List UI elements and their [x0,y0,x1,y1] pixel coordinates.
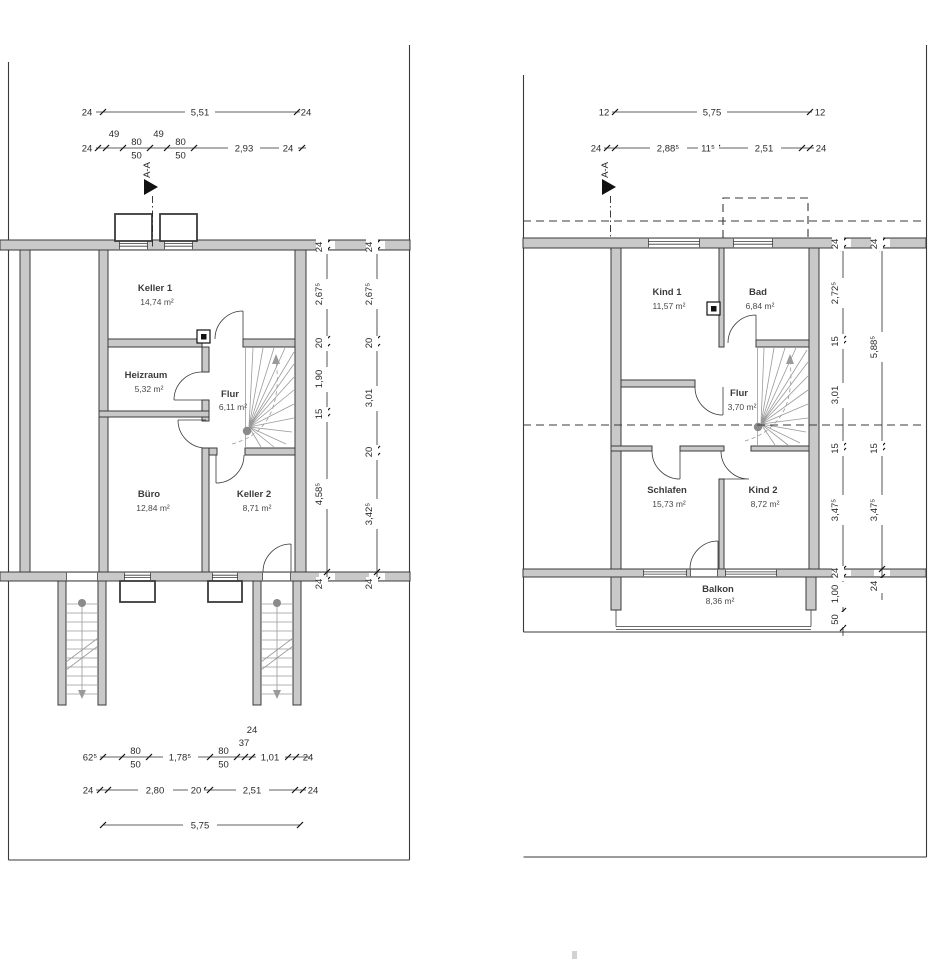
room-name-label: Balkon [702,584,734,595]
dim-label: 80 [218,746,229,757]
dim-label: 62⁵ [83,753,98,764]
dim-label: 24 [591,144,602,155]
south-wall [0,572,410,581]
dim-label: 15 [830,336,841,347]
dim-label: 2,93 [235,144,254,155]
dim-label: 49 [153,129,164,140]
dim-label: 50 [130,760,141,771]
dim-label: 24 [82,144,93,155]
dim-label: 37 [239,738,250,749]
door [652,315,756,569]
room-area-label: 14,74 m² [140,297,174,307]
north-wall [523,238,926,248]
dim-label: 11⁵ [701,144,715,155]
dim-label: 3,01 [830,386,841,405]
window [648,239,700,247]
dim-label: 3,01 [364,389,375,408]
dim-label: 2,80 [146,786,165,797]
dim-label: 24 [869,581,880,592]
stair-pole [754,423,762,431]
floorplan-drawing: A-A [0,0,941,960]
window [212,573,238,580]
section-arrow-icon [144,179,158,195]
dim-label: 4,58⁵ [314,483,325,505]
dormer-outline [723,198,808,238]
room-area-label: 8,36 m² [706,596,735,606]
room-name-label: Kind 1 [652,287,682,298]
dim-label: 50 [175,151,186,162]
window [643,570,687,576]
dim-label: 2,88⁵ [657,144,679,155]
left-floor-plan: A-A [0,45,410,860]
dim-label: 5,75 [191,821,210,832]
dim-label: 80 [131,137,142,148]
east-wall [809,248,819,569]
dimension-chain: 5,75 [100,819,303,832]
dimension-chain: 24 2,88⁵ 11⁵ 2,51 24 [591,142,827,155]
room-area-label: 11,57 m² [653,301,686,311]
dim-label: 3,47⁵ [869,499,880,521]
dim-label: 12 [599,108,610,119]
dim-label: 24 [308,786,319,797]
neighbor-wall [20,250,30,572]
dim-label: 1,01 [261,753,280,764]
room-name-label: Büro [138,489,160,500]
light-well [208,581,242,602]
room-name-label: Keller 2 [237,489,271,500]
dimension-chain: 24 5,88⁵ 15 3,47⁵ 24 [869,236,885,600]
south-wall [523,569,926,577]
chimney-symb [707,302,720,315]
dimension-chain: 24 49 80 50 49 80 50 2,93 24 [82,129,306,162]
dim-label: 24 [830,239,841,250]
dim-label: 20 [364,338,375,349]
room-name-label: Keller 1 [138,283,173,294]
dim-label: 24 [82,108,93,119]
dim-label: 20 [364,447,375,458]
window [164,241,193,249]
dim-label: 15 [830,443,841,454]
section-label: A-A [600,161,611,178]
room-area-label: 12,84 m² [136,503,170,513]
room-name-label: Bad [749,287,767,298]
dimension-chain: 24 2,67⁵ 20 1,90 15 4,58⁵ 24 [314,239,330,592]
dim-label: 80 [175,137,186,148]
dim-label: 24 [869,239,880,250]
light-well [160,214,197,241]
dim-label: 3,47⁵ [830,499,841,521]
staircase [232,347,294,448]
dimension-chain: 12 5,75 12 [599,106,826,119]
room-area-label: 8,72 m² [751,499,780,509]
dim-label: 24 [283,144,294,155]
floorplan-canvas: A-A [0,0,941,960]
north-wall [0,240,410,250]
room-area-label: 3,70 m² [728,402,757,412]
dimension-chain: 24 2,72⁵ 15 3,01 15 3,47⁵ 24 1,00 50 [830,236,846,636]
dim-label: 3,42⁵ [364,503,375,525]
dim-label: 50 [830,614,841,625]
room-area-label: 8,71 m² [243,503,272,513]
dim-label: 24 [830,568,841,579]
west-wall [611,248,621,569]
dim-label: 20 [314,338,325,349]
exterior-stair [253,581,301,705]
dim-label: 24 [314,242,325,253]
dimension-chain: 62⁵ 80 50 1,78⁵ 80 50 24 37 1,01 24 [83,725,314,771]
dim-label: 1,00 [830,585,841,604]
room-name-label: Flur [730,388,748,399]
dim-label: 24 [301,108,312,119]
window [733,239,773,247]
dim-label: 12 [815,108,826,119]
dim-label: 1,78⁵ [169,753,191,764]
dim-label: 15 [314,409,325,420]
dim-label: 24 [364,242,375,253]
dim-label: 50 [218,760,229,771]
room-name-label: Schlafen [647,485,687,496]
right-floor-plan: A-A 12 5,75 12 24 2,88⁵ 11⁵ 2,51 24 [523,45,927,857]
room-name-label: Kind 2 [748,485,777,496]
dim-label: 24 [314,579,325,590]
dim-label: 24 [247,725,258,736]
light-well [115,214,152,241]
section-arrow-icon [602,179,616,195]
light-well [120,581,155,602]
door-opening [66,573,98,580]
dim-label: 5,51 [191,108,210,119]
dim-label: 20 [191,786,202,797]
window [124,573,151,580]
dimension-chain: 24 2,80 20 2,51 24 [83,785,319,797]
room-area-label: 6,11 m² [219,402,247,412]
dim-label: 5,75 [703,108,722,119]
exterior-stair [58,581,106,705]
dim-label: 2,51 [243,786,262,797]
dim-label: 24 [303,753,314,764]
window [725,570,777,576]
room-name-label: Heizraum [125,370,168,381]
section-marker: A-A [600,161,616,250]
dimension-chain: 24 2,67⁵ 20 3,01 20 3,42⁵ 24 [364,239,380,592]
dim-label: 2,67⁵ [364,283,375,305]
dimension-chain: 24 5,51 24 [82,106,312,119]
dim-label: 2,72⁵ [830,282,841,304]
section-label: A-A [142,161,153,178]
door-opening [690,570,718,576]
stair-pole [243,427,251,435]
room-name-label: Flur [221,389,239,400]
room-area-label: 6,84 m² [746,301,775,311]
dim-label: 5,88⁵ [869,336,880,358]
dim-label: 24 [83,786,94,797]
dim-label: 80 [130,746,141,757]
dim-label: 24 [816,144,827,155]
dim-label: 2,51 [755,144,774,155]
dim-label: 24 [364,579,375,590]
dim-label: 50 [131,151,142,162]
room-area-label: 15,73 m² [652,499,686,509]
chimney-symb [197,330,210,343]
staircase [745,347,808,446]
window [119,241,148,249]
dim-label: 2,67⁵ [314,283,325,305]
page-mark [572,951,577,959]
east-wall [295,250,306,572]
dim-label: 1,90 [314,370,325,389]
dim-label: 15 [869,443,880,454]
dim-label: 49 [109,129,120,140]
door-opening [262,573,291,580]
room-area-label: 5,32 m² [135,384,164,394]
